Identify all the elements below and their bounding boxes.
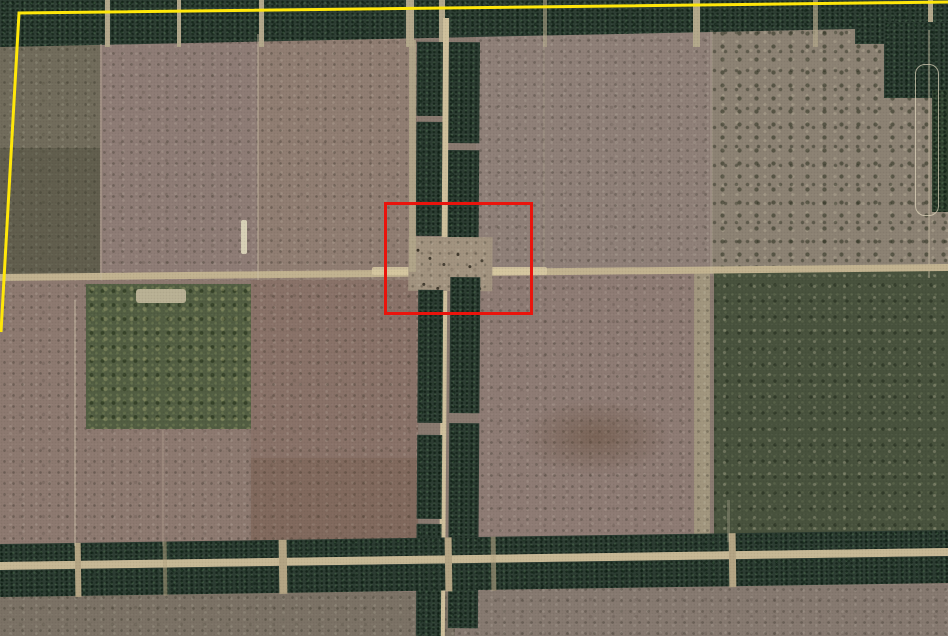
field-top-left-dark-shade [0,148,100,285]
red-highlight-rectangle [384,202,533,315]
windbreak-gap [445,537,453,591]
windbreak-gap [75,543,82,597]
track-field-boundary [162,430,164,546]
track-field-boundary [74,300,76,546]
windbreak-gap [259,0,264,47]
belt-upper-right-1 [448,42,480,143]
windbreak-gap [813,0,818,47]
white-dash-mark [241,220,247,254]
windbreak-gap [491,537,497,591]
field-bottom-left-brown-shade [251,458,418,546]
track-field-boundary [710,30,713,274]
windbreak-gap [105,0,110,47]
windbreak-gap [693,0,700,47]
field-bottom-right-dark [714,268,948,536]
belt-upper-left-1 [416,42,443,116]
track-field-boundary [543,34,545,272]
belt-lower-left-2 [417,435,443,519]
cleared-loop-track-right-edge [915,64,939,216]
belt-lower-right-2 [448,423,479,543]
dark-vegetation-patch-left [86,284,251,429]
track-field-boundary [100,44,102,280]
boundary-column-track [694,272,710,540]
track-field-boundary [727,500,730,542]
patch-clearing [136,289,186,303]
satellite-map-canvas[interactable] [0,0,948,636]
windbreak-gap [177,0,181,47]
track-field-boundary [257,34,259,280]
field-bottom-strip-right [455,584,948,636]
windbreak-gap [279,540,288,594]
windbreak-gap [163,542,168,596]
field-bottom-mid-smudge [518,398,673,476]
field-top-center [100,26,258,280]
field-bottom-strip-left [0,592,455,636]
